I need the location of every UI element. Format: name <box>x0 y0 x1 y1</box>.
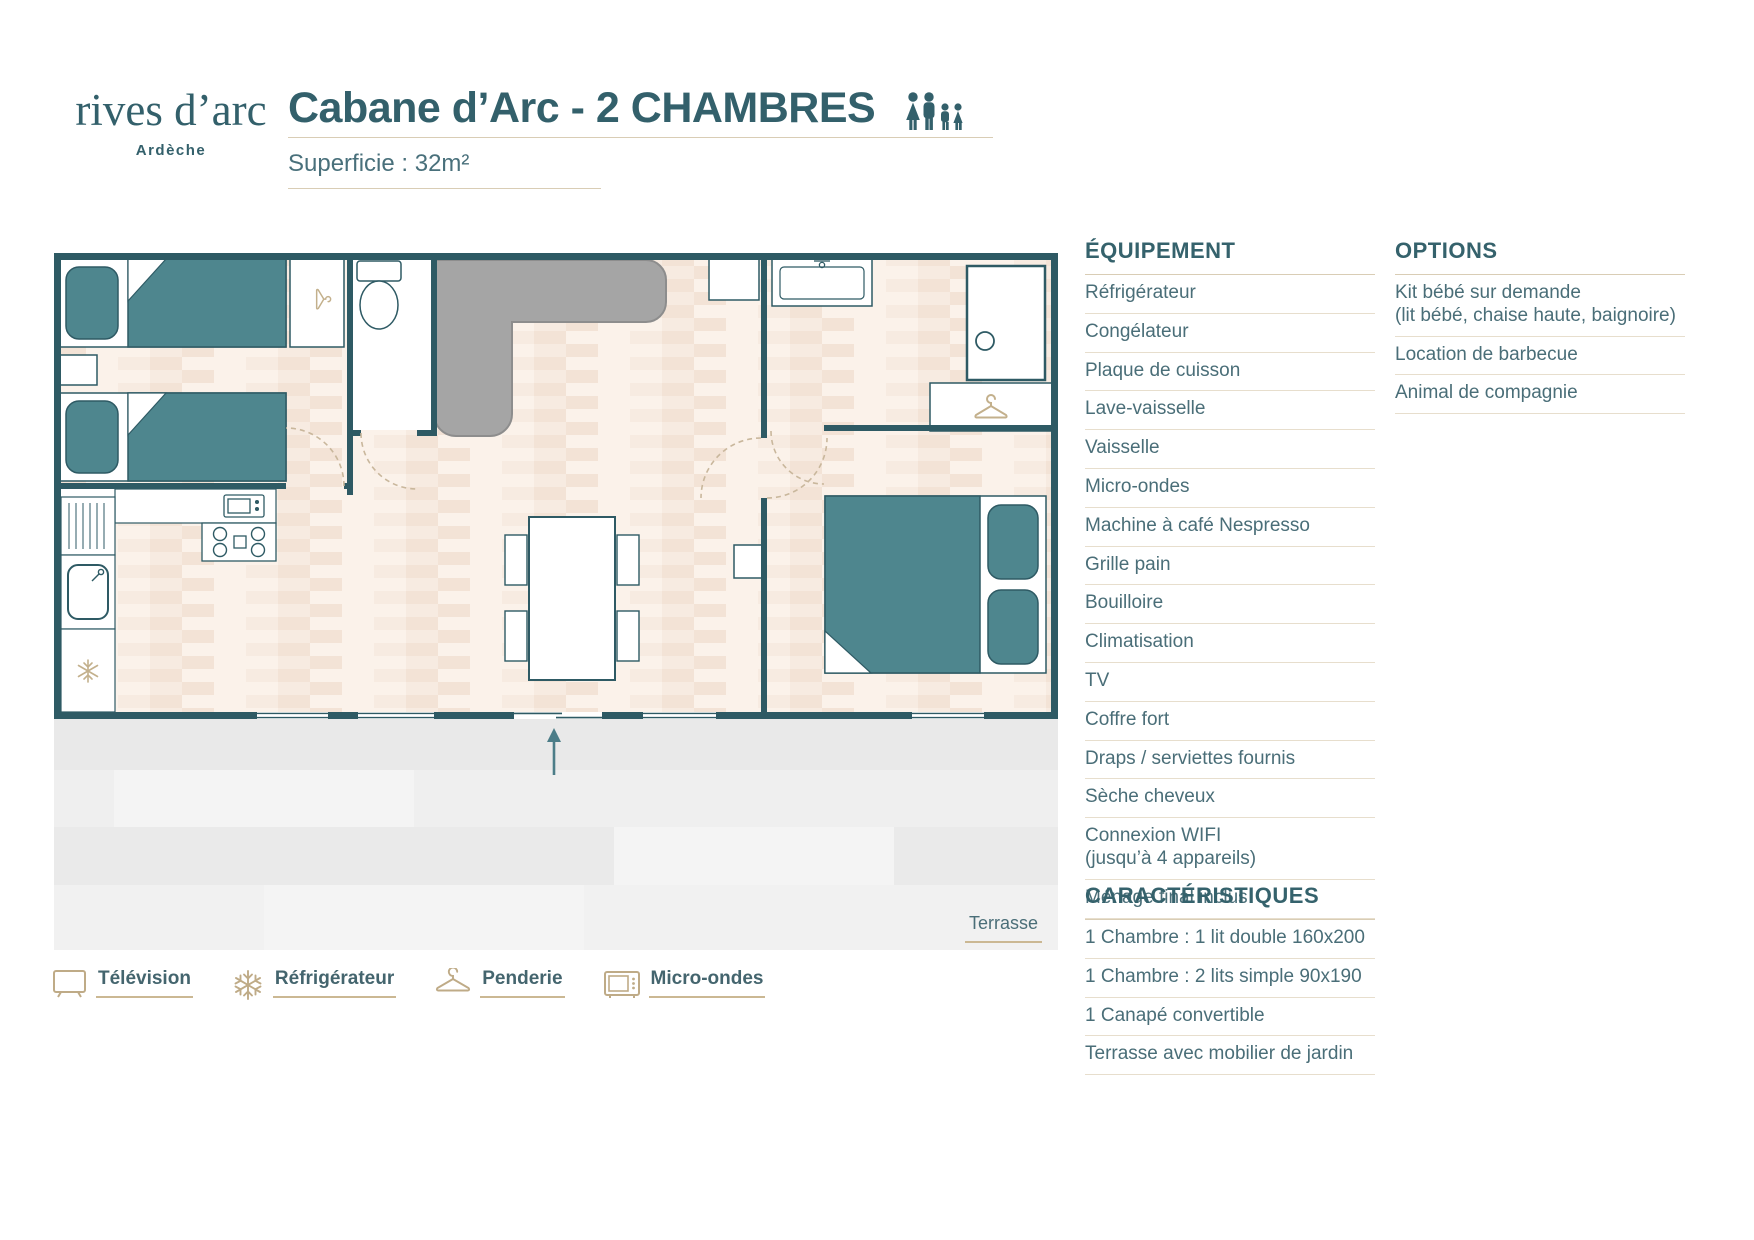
options-section: OPTIONS Kit bébé sur demande (lit bébé, … <box>1395 238 1685 414</box>
terrace-plank-band <box>54 827 1058 885</box>
tv-icon <box>52 968 88 1000</box>
list-item: Grille pain <box>1085 547 1375 586</box>
list-item: Climatisation <box>1085 624 1375 663</box>
legend-label: Micro-ondes <box>649 966 766 998</box>
stove-icon <box>202 523 276 561</box>
capacity-icon <box>903 90 967 132</box>
list-item: TV <box>1085 663 1375 702</box>
single-bed-1 <box>57 259 286 347</box>
equipment-title: ÉQUIPEMENT <box>1085 238 1375 275</box>
area-label: Superficie : 32m² <box>288 150 998 178</box>
terrace-plank-patch <box>264 885 584 950</box>
legend-item-television: Télévision <box>52 966 193 1000</box>
list-item: Coffre fort <box>1085 702 1375 741</box>
list-item: 1 Chambre : 1 lit double 160x200 <box>1085 920 1375 959</box>
brand-logo: rives d’arc Ardèche <box>66 88 276 159</box>
cabinet <box>709 256 759 300</box>
shower <box>967 266 1045 380</box>
list-item: Congélateur <box>1085 314 1375 353</box>
legend-label: Réfrigérateur <box>273 966 396 998</box>
list-item: Draps / serviettes fournis <box>1085 741 1375 780</box>
wc-floor <box>353 256 431 430</box>
brand-name: rives d’arc <box>66 88 276 133</box>
pillow <box>66 401 118 473</box>
brand-region: Ardèche <box>66 142 276 159</box>
options-title: OPTIONS <box>1395 238 1685 275</box>
list-item: Réfrigérateur <box>1085 275 1375 314</box>
list-item: Micro-ondes <box>1085 469 1375 508</box>
terrace-plank-patch <box>114 770 414 827</box>
toilet-icon <box>357 261 401 329</box>
characteristics-section: CARACTÉRISTIQUES 1 Chambre : 1 lit doubl… <box>1085 883 1375 1075</box>
legend-item-micro-ondes: Micro-ondes <box>603 966 766 1000</box>
wardrobe <box>930 383 1052 431</box>
equipment-section: ÉQUIPEMENT RéfrigérateurCongélateurPlaqu… <box>1085 238 1375 919</box>
pillow <box>988 505 1038 579</box>
brochure-page: rives d’arc Ardèche Cabane d’Arc - 2 CHA… <box>0 0 1754 1240</box>
terrace-plank-patch <box>614 827 894 885</box>
snowflake-icon <box>231 968 265 1002</box>
bedroom-closet <box>290 259 344 347</box>
floorplan <box>54 253 1058 719</box>
pillow <box>988 590 1038 664</box>
area-underline <box>288 188 601 189</box>
list-item: Animal de compagnie <box>1395 375 1685 414</box>
list-item: 1 Canapé convertible <box>1085 998 1375 1037</box>
single-bed-2 <box>57 393 286 481</box>
characteristics-list: 1 Chambre : 1 lit double 160x2001 Chambr… <box>1085 920 1375 1075</box>
microwave-icon <box>603 968 641 1000</box>
list-item: Location de barbecue <box>1395 337 1685 376</box>
options-list: Kit bébé sur demande (lit bébé, chaise h… <box>1395 275 1685 414</box>
nightstand <box>57 355 97 385</box>
legend-label: Télévision <box>96 966 193 998</box>
page-title: Cabane d’Arc - 2 CHAMBRES <box>288 84 875 133</box>
plan-legend: Télévision Réfrigérateur Penderie <box>52 966 803 1002</box>
list-item: Connexion WIFI (jusqu’à 4 appareils) <box>1085 818 1375 880</box>
fridge-plan-icon <box>61 629 115 712</box>
list-item: Kit bébé sur demande (lit bébé, chaise h… <box>1395 275 1685 337</box>
entrance-arrow-icon <box>534 725 574 777</box>
console-table <box>734 545 762 578</box>
list-item: Sèche cheveux <box>1085 779 1375 818</box>
header: Cabane d’Arc - 2 CHAMBRES Superficie : 3… <box>288 84 998 189</box>
sink-icon <box>61 555 115 629</box>
pillow <box>66 267 118 339</box>
characteristics-title: CARACTÉRISTIQUES <box>1085 883 1375 920</box>
vanity-sink <box>772 256 872 306</box>
list-item: Vaisselle <box>1085 430 1375 469</box>
double-bed <box>825 496 1046 673</box>
legend-item-penderie: Penderie <box>434 966 564 998</box>
list-item: Terrasse avec mobilier de jardin <box>1085 1036 1375 1075</box>
title-underline <box>288 137 993 138</box>
terrace: Terrasse <box>54 719 1058 950</box>
terrace-label: Terrasse <box>965 913 1042 943</box>
legend-item-refrigerateur: Réfrigérateur <box>231 966 396 1002</box>
list-item: Plaque de cuisson <box>1085 353 1375 392</box>
legend-label: Penderie <box>480 966 564 998</box>
list-item: Lave-vaisselle <box>1085 391 1375 430</box>
list-item: 1 Chambre : 2 lits simple 90x190 <box>1085 959 1375 998</box>
list-item: Bouilloire <box>1085 585 1375 624</box>
list-item: Machine à café Nespresso <box>1085 508 1375 547</box>
hanger-icon <box>434 968 472 996</box>
dish-drainer <box>61 497 115 555</box>
equipment-list: RéfrigérateurCongélateurPlaque de cuisso… <box>1085 275 1375 919</box>
